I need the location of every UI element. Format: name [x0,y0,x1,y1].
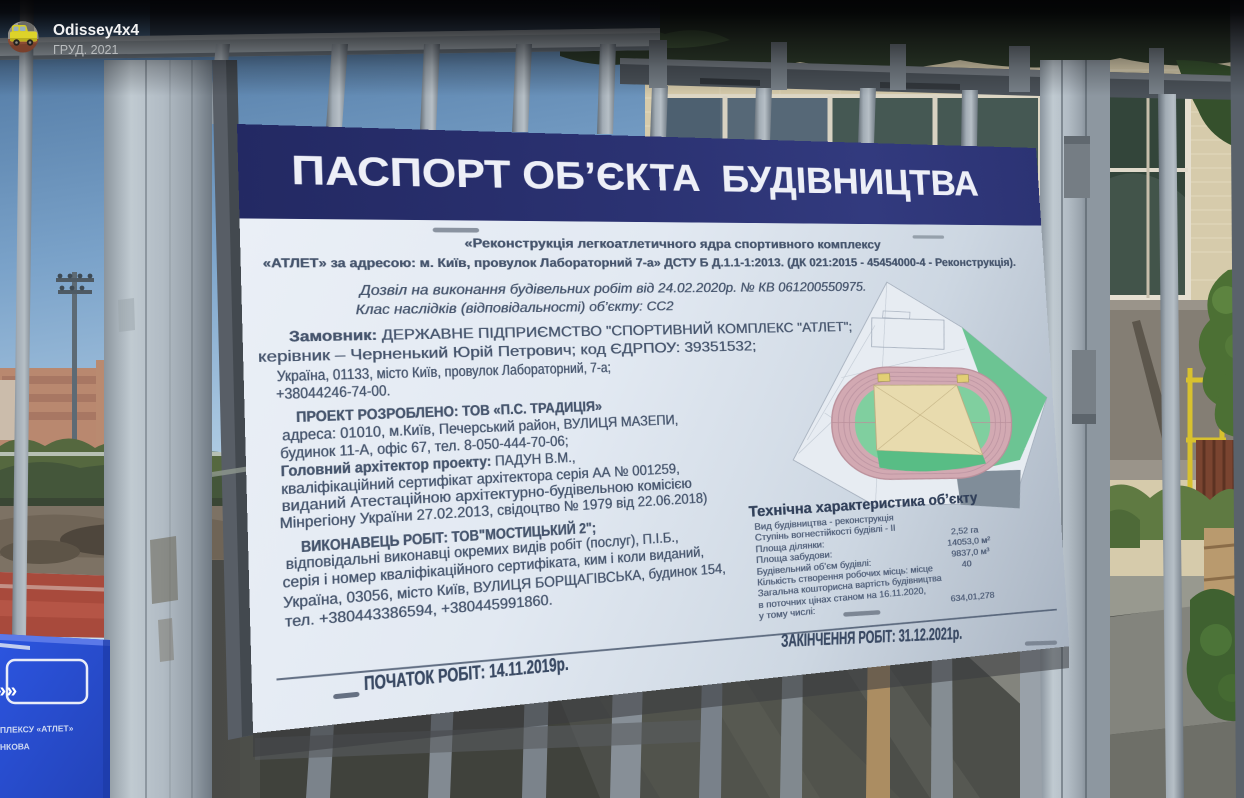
svg-text:ГРУД. 2021: ГРУД. 2021 [53,43,118,57]
svg-text:»»: »» [0,680,17,702]
svg-text:НКОВА: НКОВА [0,741,30,752]
svg-text:Odissey4x4: Odissey4x4 [53,22,140,39]
svg-text:ПЛЕКСУ «АТЛЕТ»: ПЛЕКСУ «АТЛЕТ» [0,723,74,735]
